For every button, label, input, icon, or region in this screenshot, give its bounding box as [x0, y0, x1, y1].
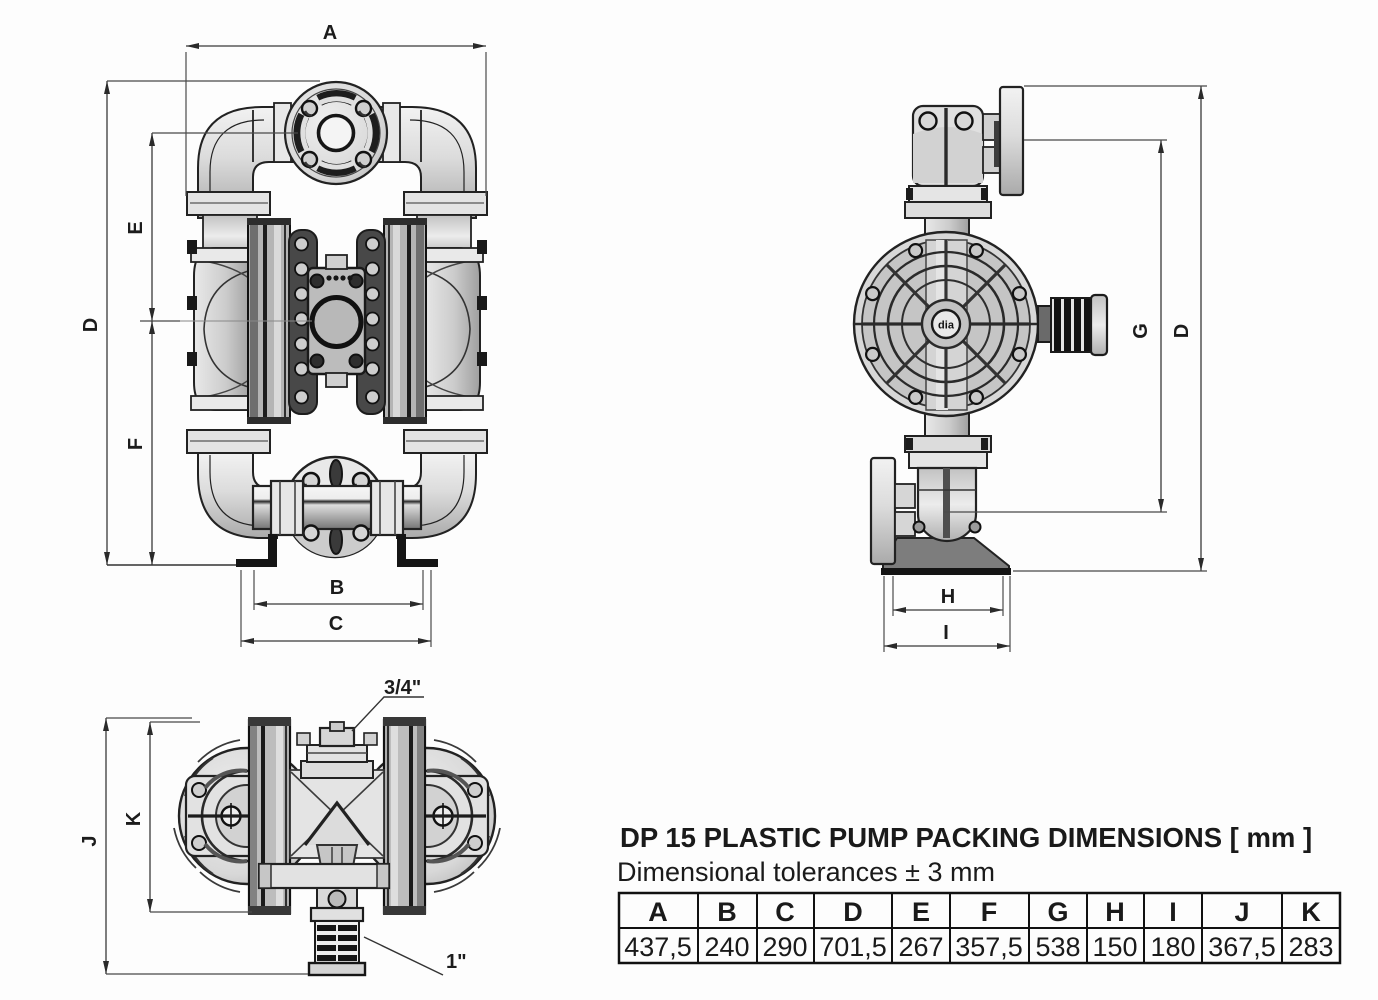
svg-text:C: C [329, 613, 343, 635]
svg-text:I: I [943, 622, 949, 644]
svg-text:180: 180 [1150, 932, 1195, 962]
svg-text:E: E [125, 221, 147, 234]
svg-text:G: G [1047, 897, 1068, 927]
svg-text:B: B [330, 577, 344, 599]
svg-text:701,5: 701,5 [819, 932, 887, 962]
svg-text:437,5: 437,5 [624, 932, 692, 962]
svg-text:1": 1" [446, 951, 467, 973]
svg-text:367,5: 367,5 [1208, 932, 1276, 962]
svg-text:K: K [123, 811, 145, 826]
svg-text:F: F [125, 438, 147, 450]
svg-text:538: 538 [1035, 932, 1080, 962]
svg-text:A: A [323, 22, 337, 44]
svg-text:283: 283 [1288, 932, 1333, 962]
svg-text:C: C [775, 897, 795, 927]
svg-text:I: I [1169, 897, 1177, 927]
svg-text:D: D [1171, 324, 1193, 338]
svg-text:3/4": 3/4" [384, 677, 421, 699]
svg-text:357,5: 357,5 [955, 932, 1023, 962]
svg-text:150: 150 [1092, 932, 1137, 962]
svg-text:D: D [80, 318, 102, 332]
svg-text:dia: dia [938, 320, 955, 332]
svg-text:Dimensional tolerances ± 3 mm: Dimensional tolerances ± 3 mm [617, 857, 995, 887]
svg-text:267: 267 [898, 932, 943, 962]
svg-text:K: K [1301, 897, 1321, 927]
svg-text:D: D [843, 897, 863, 927]
svg-text:F: F [981, 897, 998, 927]
svg-text:J: J [79, 835, 101, 846]
svg-text:DP 15 PLASTIC PUMP PACKING DIM: DP 15 PLASTIC PUMP PACKING DIMENSIONS [ … [620, 822, 1312, 853]
svg-text:290: 290 [762, 932, 807, 962]
svg-text:A: A [648, 897, 668, 927]
svg-text:240: 240 [704, 932, 749, 962]
svg-text:B: B [717, 897, 737, 927]
svg-text:G: G [1130, 323, 1152, 339]
svg-text:E: E [912, 897, 930, 927]
svg-text:H: H [1105, 897, 1125, 927]
svg-text:H: H [941, 586, 955, 608]
svg-text:J: J [1234, 897, 1249, 927]
